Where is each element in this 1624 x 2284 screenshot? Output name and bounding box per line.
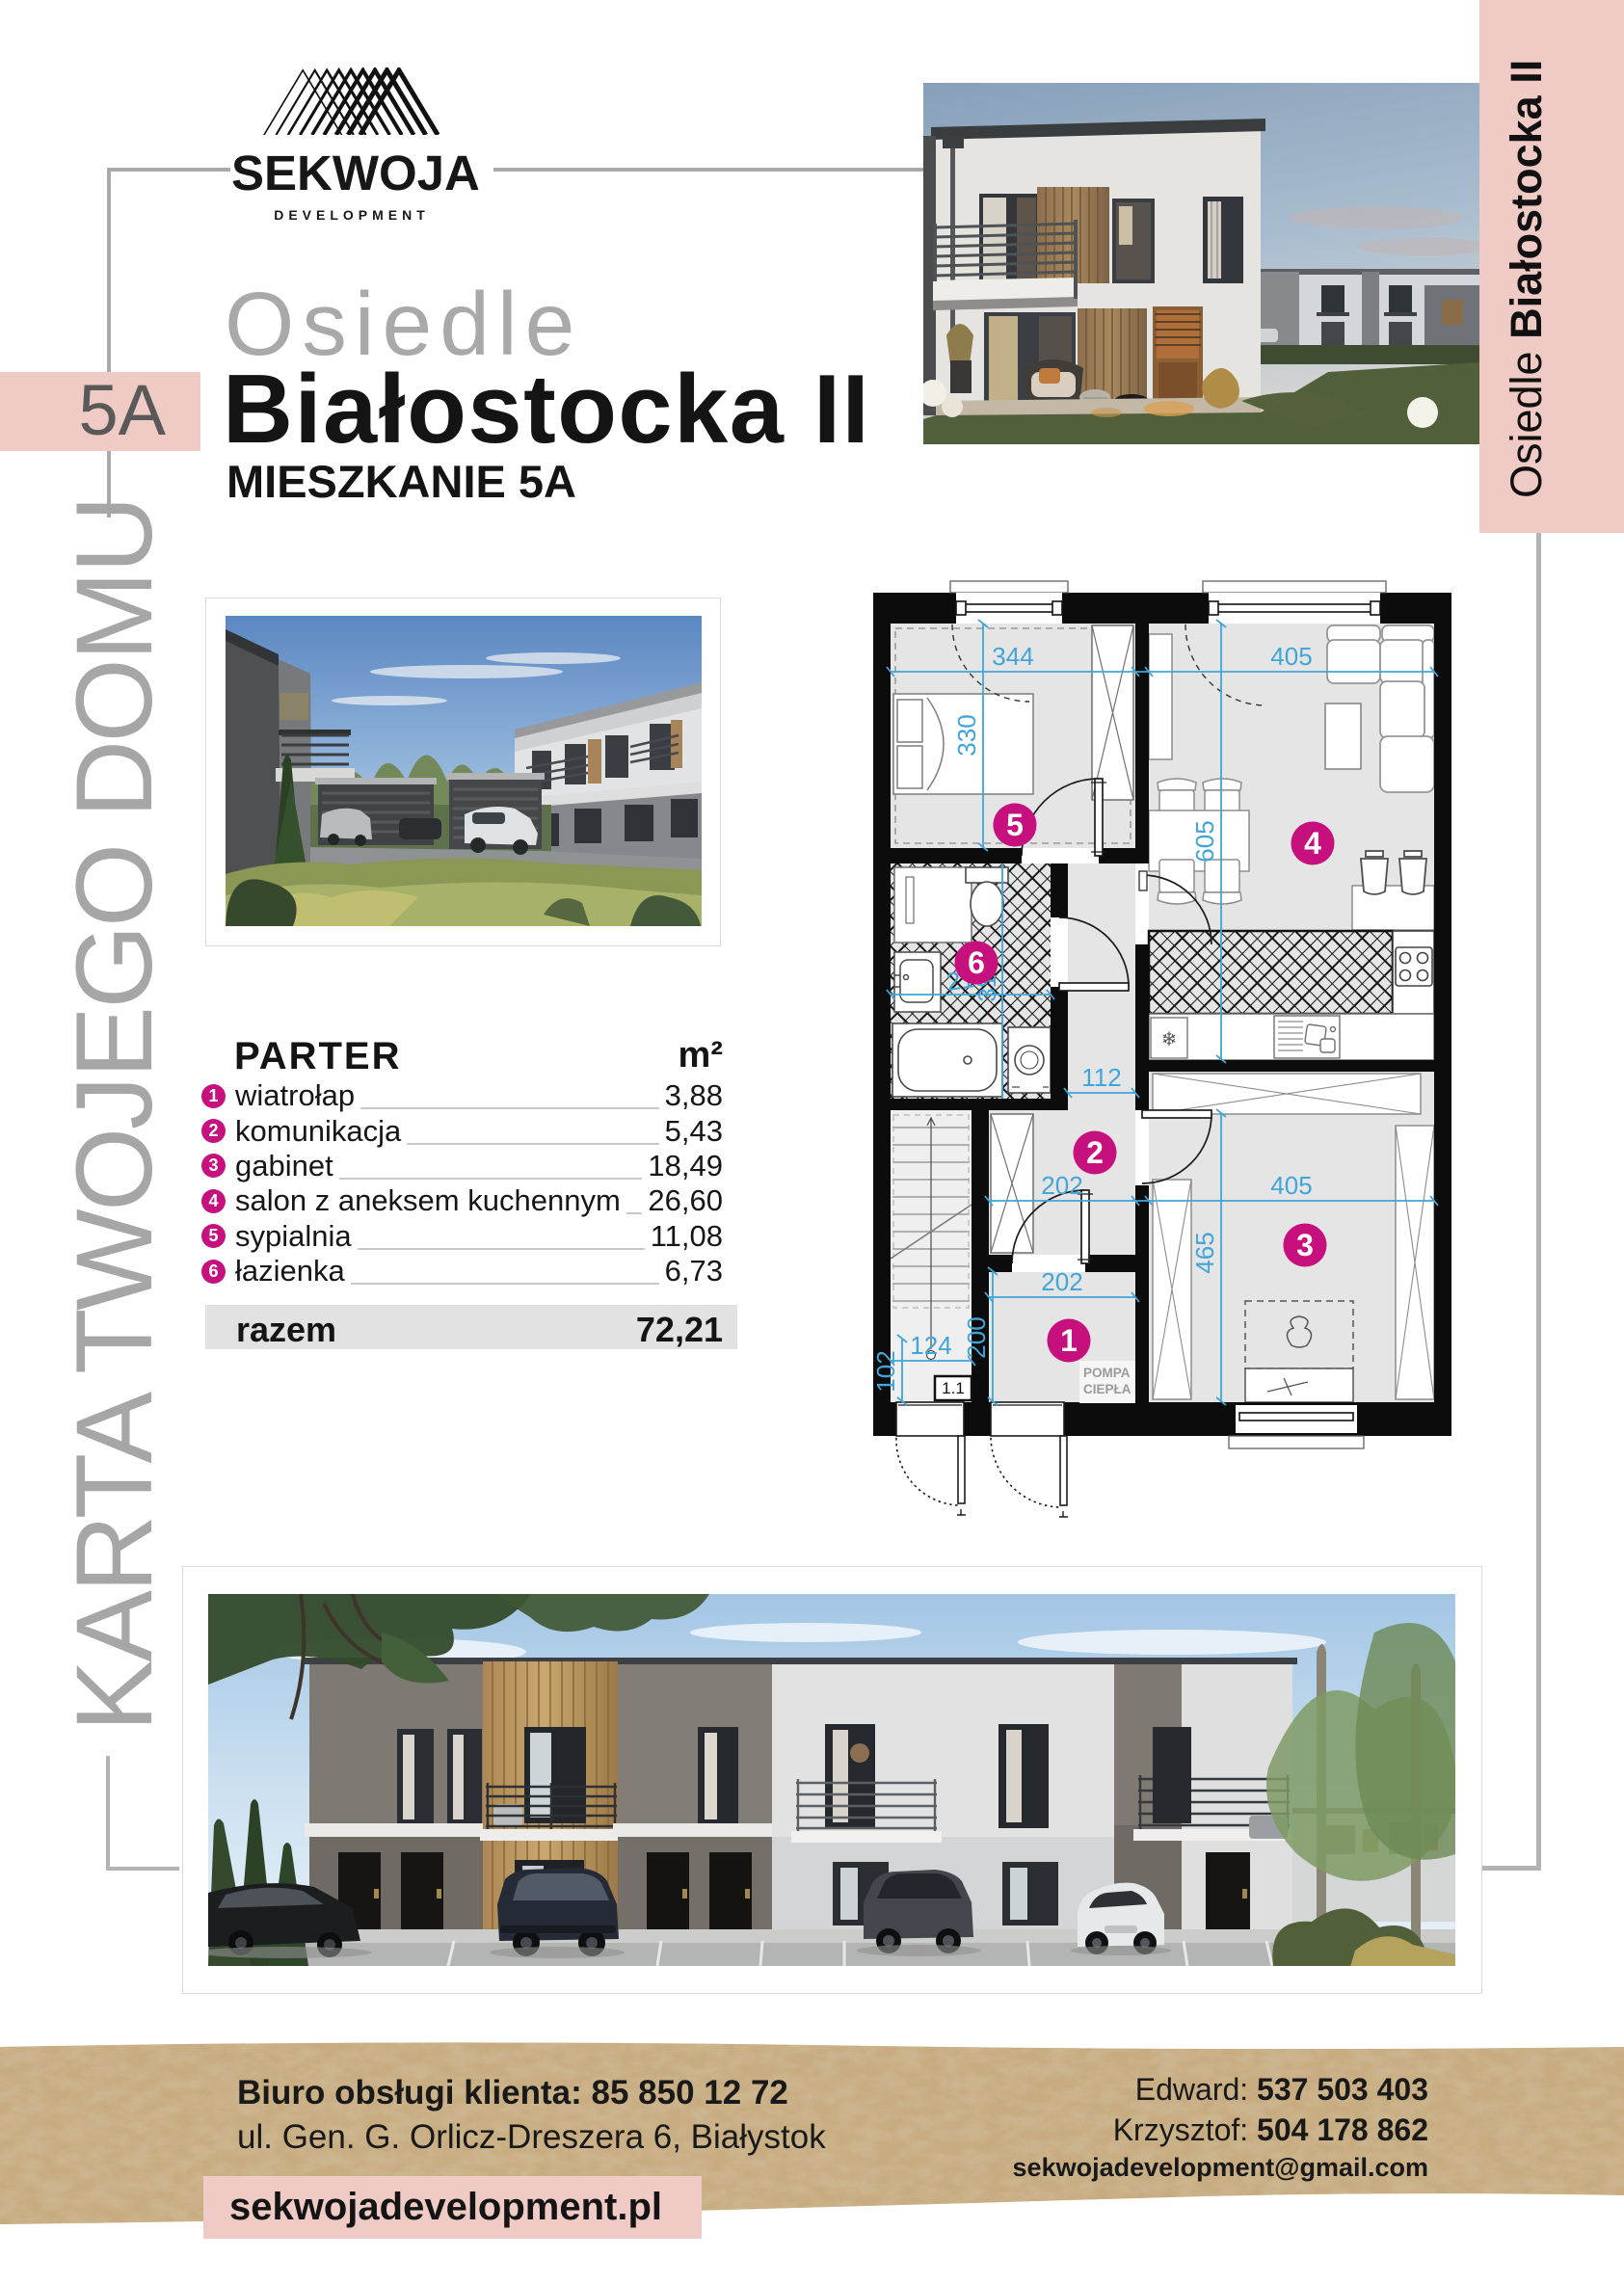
svg-text:4: 4 xyxy=(1304,826,1321,861)
svg-text:1.1: 1.1 xyxy=(942,1379,965,1397)
svg-text:6: 6 xyxy=(968,945,985,980)
svg-text:405: 405 xyxy=(1270,1171,1312,1200)
svg-text:102: 102 xyxy=(871,1350,900,1392)
svg-text:330: 330 xyxy=(952,714,981,756)
svg-text:1: 1 xyxy=(1060,1323,1078,1358)
svg-text:124: 124 xyxy=(910,1331,951,1360)
svg-text:200: 200 xyxy=(962,1316,991,1358)
svg-text:3: 3 xyxy=(1296,1228,1314,1262)
svg-text:605: 605 xyxy=(1190,820,1219,862)
svg-text:405: 405 xyxy=(1270,642,1312,671)
svg-text:CIEPŁA: CIEPŁA xyxy=(1083,1382,1131,1396)
svg-text:5: 5 xyxy=(1006,808,1024,842)
svg-text:2: 2 xyxy=(1086,1135,1104,1170)
svg-text:112: 112 xyxy=(1081,1063,1121,1092)
svg-text:POMPA: POMPA xyxy=(1083,1366,1131,1380)
svg-text:465: 465 xyxy=(1190,1232,1219,1273)
svg-text:202: 202 xyxy=(1041,1171,1082,1200)
svg-text:344: 344 xyxy=(992,642,1033,671)
svg-text:202: 202 xyxy=(1041,1267,1082,1296)
svg-text:❄: ❄ xyxy=(1161,1029,1178,1050)
